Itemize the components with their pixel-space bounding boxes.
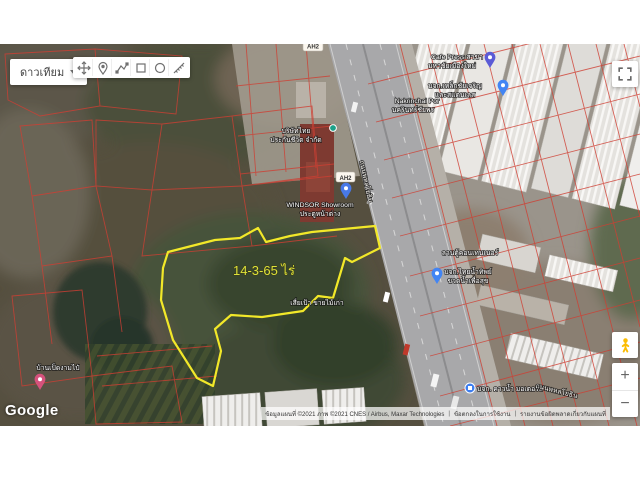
label-cafe-press-2: มหาชัยเมืองใหม่ xyxy=(428,62,476,70)
label-cafe-press-1: Cafe Press สาขา xyxy=(431,54,483,61)
draw-line-icon[interactable] xyxy=(114,59,131,76)
area-size-label: 14-3-65 ไร่ xyxy=(233,263,295,278)
label-nakrinchai-2: นครินทร์ชัยพร xyxy=(392,106,435,114)
label-thai-life-2: ประกันชีวิต จำกัด xyxy=(270,136,321,144)
svg-text:AH2: AH2 xyxy=(339,176,352,182)
poi-circle-blue[interactable] xyxy=(465,383,475,393)
report-error-link[interactable]: รายงานข้อผิดพลาดเกี่ยวกับแผนที่ xyxy=(520,409,606,419)
add-marker-icon[interactable] xyxy=(95,59,112,76)
map-attribution: ข้อมูลแผนที่ ©2021 ภาพ ©2021 CNES / Airb… xyxy=(261,407,610,420)
fullscreen-button[interactable] xyxy=(612,61,638,87)
attribution-separator: | xyxy=(448,411,450,417)
poi-dot-teal[interactable] xyxy=(330,125,337,132)
terms-link[interactable]: ข้อตกลงในการใช้งาน xyxy=(454,409,511,419)
zoom-in-button[interactable]: + xyxy=(612,363,638,391)
draw-circle-icon[interactable] xyxy=(152,59,169,76)
label-thai-life-1: บริษัทไทย xyxy=(282,127,311,135)
label-steel-co-2: และสแตนเลส xyxy=(435,92,476,99)
attribution-separator: | xyxy=(514,411,516,417)
google-logo: Google xyxy=(5,402,58,419)
fullscreen-icon xyxy=(617,66,633,82)
label-steel-co-1: บจก.เหล็กชัยเจริญ xyxy=(428,81,482,90)
label-sia-pao: เสี่ยเป้า ขายไม้เก่า xyxy=(290,298,344,307)
label-windsor-1: WINDSOR Showroom xyxy=(286,202,354,209)
road-shield-top: AH2 xyxy=(303,44,323,51)
attribution-copyright: ข้อมูลแผนที่ ©2021 ภาพ ©2021 CNES / Airb… xyxy=(265,409,444,419)
road-shield-mid: AH2 xyxy=(336,172,355,182)
label-container-yard: ลานตู้คอนเทนเนอร์ xyxy=(442,249,499,257)
zoom-out-button[interactable]: − xyxy=(612,391,638,418)
listing-photo-frame: 14-3-65 ไร่ AH2 AH2 xyxy=(0,0,640,480)
label-ban-ped: บ้านเป็ดงามไป๋ xyxy=(36,363,79,372)
measure-icon[interactable] xyxy=(171,59,187,76)
label-windsor-2: ประตูหน้าต่าง xyxy=(300,210,341,218)
pan-icon[interactable] xyxy=(76,59,93,76)
satellite-layer-label: ดาวเทียม xyxy=(20,63,64,81)
zoom-controls: + − xyxy=(612,363,638,417)
draw-shape-icon[interactable] xyxy=(133,59,150,76)
pegman-icon xyxy=(618,337,633,353)
svg-text:AH2: AH2 xyxy=(307,45,320,51)
label-nakrinchai-1: Nakrinchai Por xyxy=(395,98,440,105)
pegman-button[interactable] xyxy=(612,332,638,358)
orchard-rows xyxy=(85,344,215,424)
satellite-map[interactable]: 14-3-65 ไร่ AH2 AH2 xyxy=(0,44,640,426)
drawing-toolbar xyxy=(73,57,190,78)
